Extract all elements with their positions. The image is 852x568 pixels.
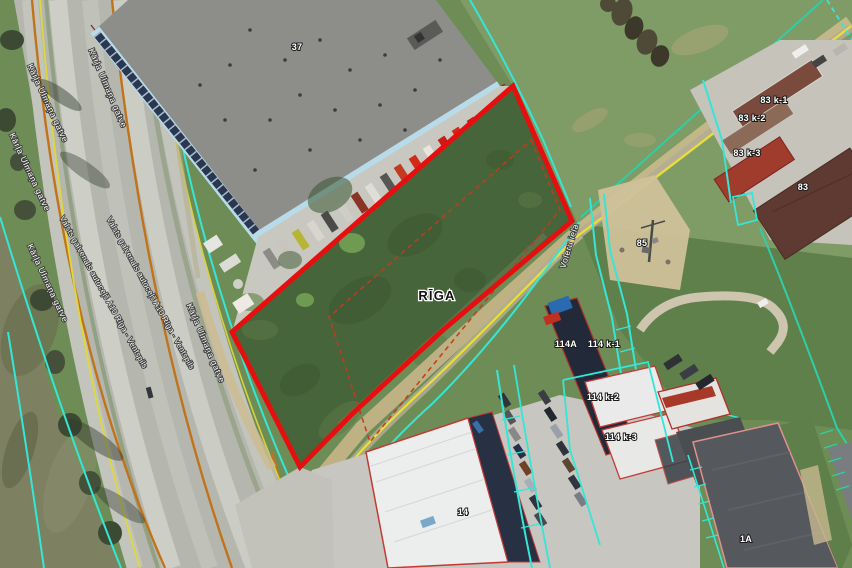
parcel-label-114a: 114A [555, 339, 577, 349]
parcel-label-114k1: 114 k-1 [588, 339, 620, 349]
parcel-label-85: 85 [637, 238, 648, 248]
map-canvas[interactable]: 37 RĪGA 83 k-1 83 k-2 83 k-3 83 85 114A … [0, 0, 852, 568]
parcel-label-83: 83 [798, 182, 809, 192]
parcel-label-114k3: 114 k-3 [605, 432, 637, 442]
parcel-label-83k3: 83 k-3 [733, 148, 760, 158]
parcel-label-114k2: 114 k-2 [587, 392, 619, 402]
parcel-label-37: 37 [292, 42, 303, 52]
parcel-label-83k1: 83 k-1 [760, 95, 787, 105]
city-label-riga: RĪGA [418, 288, 455, 303]
parcel-label-83k2: 83 k-2 [738, 113, 765, 123]
parcel-label-1a: 1A [740, 534, 752, 544]
parcel-label-14: 14 [458, 507, 469, 517]
